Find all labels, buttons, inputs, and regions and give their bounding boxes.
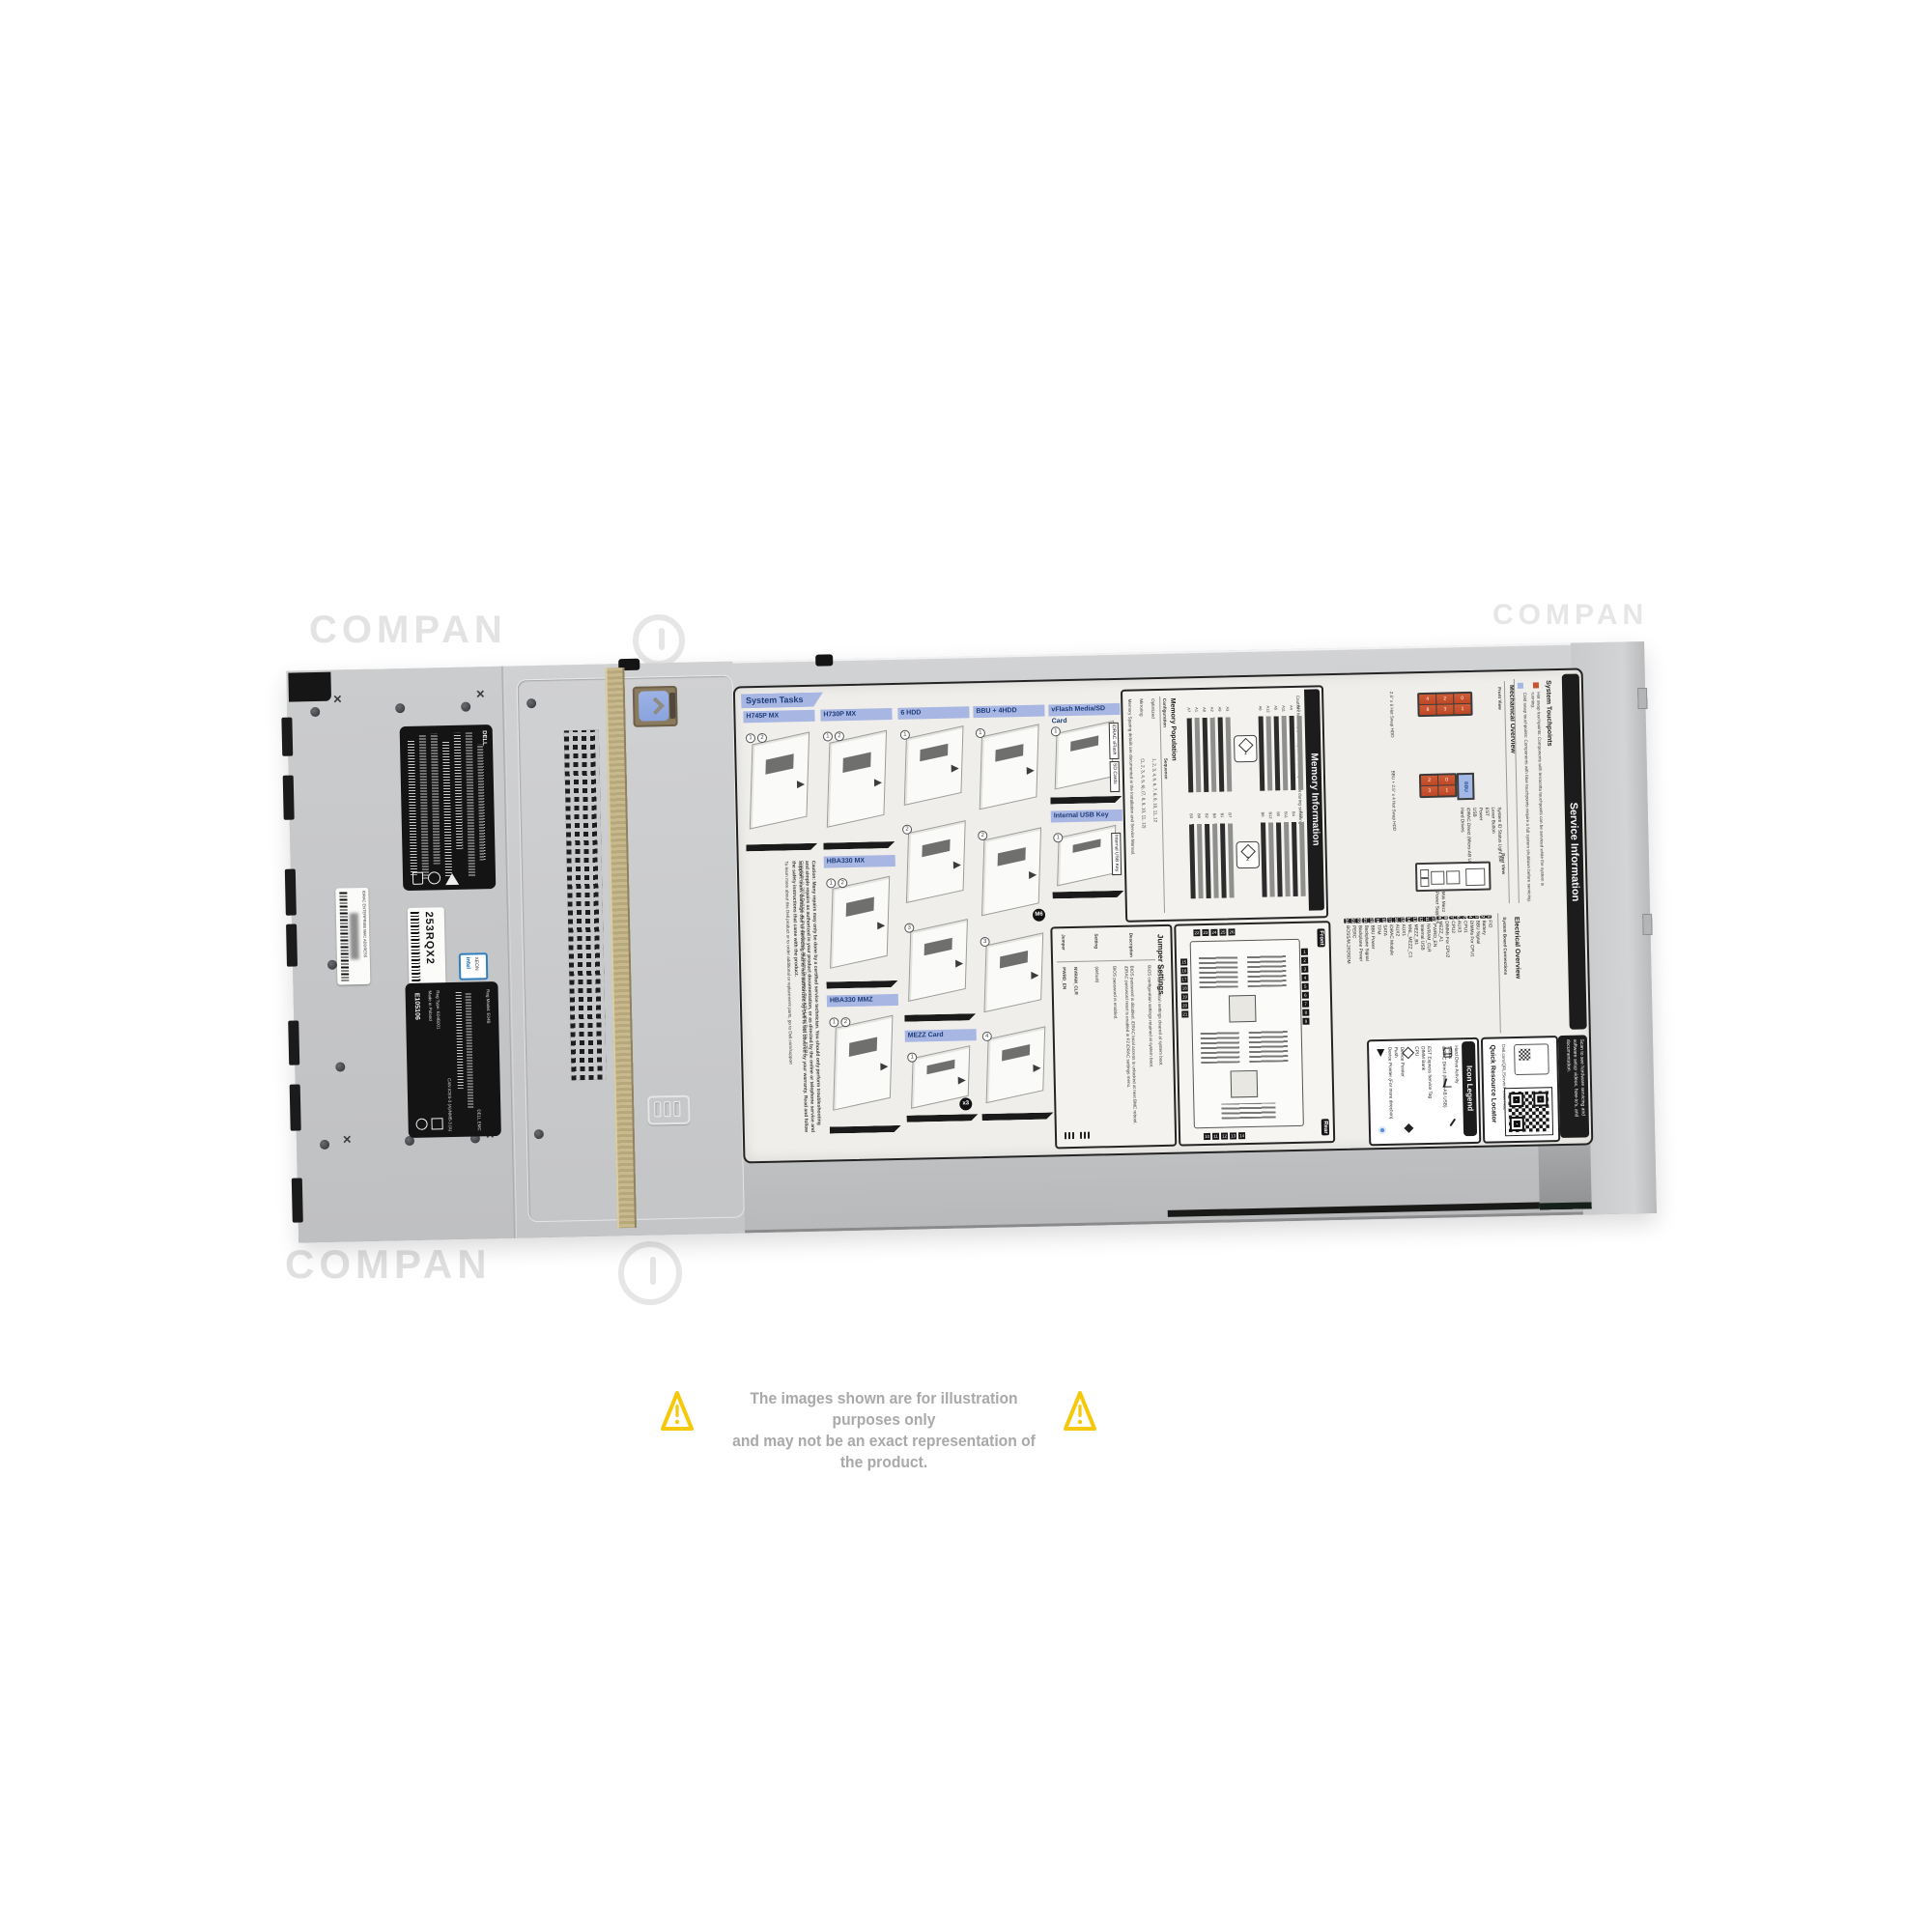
list-item: 22	[1193, 929, 1200, 936]
list-item: Power	[1476, 808, 1484, 860]
tile-illustration: 12	[821, 722, 894, 841]
cert-square-icon	[431, 1118, 442, 1129]
cert-circle-icon	[428, 871, 440, 884]
ul-number: E105106	[413, 993, 421, 1020]
list-item: Power Supplies	[1433, 892, 1439, 930]
service-information-title: Service Information	[1562, 673, 1587, 1029]
list-item: A11	[1281, 705, 1288, 790]
watermark-logo	[633, 614, 685, 667]
tile-shadow-bar	[982, 1112, 1054, 1121]
disclaimer-text: The images shown are for illustration pu…	[720, 1388, 1048, 1473]
reg-model-text: Reg Model: E04B	[485, 989, 492, 1023]
cpu1-symbol: 1	[1234, 735, 1258, 763]
cold-swap-icon	[1518, 683, 1523, 689]
drive-latch-tab	[285, 869, 297, 916]
screw-size-badge: M6	[1033, 909, 1045, 922]
list-item: 3	[1421, 786, 1437, 796]
tile-shadow-bar	[830, 1125, 901, 1134]
callout-box: Internal USB Key	[1111, 833, 1122, 875]
list-item: A8	[1202, 707, 1208, 792]
tile-header: BBU + 4HDD	[973, 705, 1044, 719]
icon-legend-title: Icon Legend	[1462, 1041, 1477, 1136]
drive-latch-tab	[292, 1178, 303, 1222]
dell-emc-text: DELL EMC	[475, 1109, 481, 1130]
rear-connector-block	[1538, 1141, 1592, 1209]
regulatory-label: DELL	[400, 724, 497, 891]
list-item: Lever Button	[1489, 807, 1496, 859]
drive-latch-tab	[288, 1020, 299, 1065]
tile-shadow-bar	[823, 841, 895, 850]
list-item: A2	[1209, 707, 1216, 792]
memory-population-title: Memory Population	[1169, 698, 1177, 761]
list-item: 4	[1419, 695, 1435, 704]
tile-shadow-bar	[826, 980, 897, 989]
list-item: 15	[1180, 958, 1187, 965]
board-front-tag: Front	[1317, 928, 1324, 947]
list-item: B10	[1299, 811, 1306, 896]
list-item: 1	[1438, 785, 1455, 795]
cpu-socket	[1229, 995, 1257, 1023]
list-item: iDRAC Direct (Micro-AB USB)	[1463, 808, 1471, 860]
grip-slots	[647, 1095, 691, 1125]
rivet-clip: ×	[343, 1131, 352, 1148]
list-item: 17	[1180, 976, 1187, 982]
list-item: 14	[1238, 1132, 1245, 1139]
sequence-col-header: Sequence	[1163, 758, 1169, 780]
list-item: 19	[1181, 993, 1188, 1000]
tile-header: 6 HDD	[897, 706, 969, 720]
tile-header: H745P MX	[743, 710, 814, 724]
weee-bin-icon	[412, 872, 423, 885]
list-item: 20	[1181, 1002, 1188, 1009]
rivet-clip: ×	[333, 691, 342, 707]
product-photo-page: COMPAN COMPAN COMPAN COMPAN COMPAN COMPA…	[0, 0, 1932, 1932]
list-item: 16	[1180, 967, 1187, 974]
drive-latch-tab	[290, 1084, 301, 1130]
list-item: 2	[1301, 957, 1308, 964]
list-item: 7	[1302, 1001, 1309, 1008]
front2-caption: BBU + 2.5" x 4 Hot Swap HDD	[1390, 771, 1398, 854]
warning-triangle-icon	[445, 873, 459, 885]
list-item: 12	[1221, 1133, 1228, 1140]
tile-illustration: 2 M6	[976, 821, 1047, 927]
description-col-header: Description	[1127, 933, 1133, 957]
drive-latch-tab	[281, 718, 293, 756]
list-item: 8	[1419, 705, 1435, 715]
tile-header: MEZZ Card	[905, 1029, 977, 1042]
xeon-text: XEON	[473, 956, 479, 970]
jumper-default-note: (default)	[1094, 966, 1099, 982]
disclaimer-line2: and may not be an exact representation o…	[720, 1431, 1048, 1473]
board-callout-numbers-top: 2223242526	[1193, 928, 1235, 936]
mirroring-sequence: (1, 2, 3, 4, 5, 6), (7, 8, 9, 10, 11, 12…	[1140, 758, 1149, 913]
tile-header: vFlash Media/SD Card	[1048, 703, 1120, 717]
list-item: 1	[1454, 704, 1470, 714]
tile-shadow-bar	[907, 1114, 979, 1122]
list-item: 1	[1301, 949, 1308, 955]
list-item: B8	[1212, 813, 1219, 898]
list-item: 5	[1302, 983, 1309, 990]
hard-drive-activity-icon	[1443, 1047, 1452, 1057]
list-item: 8	[1302, 1009, 1309, 1016]
jumper-settings-box: Jumper Settings Jumper Setting Descripti…	[1050, 924, 1177, 1150]
rivet-clip: ×	[476, 686, 485, 702]
reg-type-text: Reg Type: E04B001	[435, 990, 441, 1029]
sparing-note: Memory Sparing details are documented in…	[1126, 699, 1137, 914]
tile-illustration: 2	[900, 814, 972, 913]
list-item: 26	[1228, 928, 1235, 935]
list-item: 13	[1230, 1132, 1236, 1139]
tile-header: H730P MX	[820, 708, 892, 722]
jumper-pins-icon	[1080, 1132, 1090, 1139]
screw-count-badge: x3	[959, 1097, 972, 1110]
list-item: 10	[1204, 1133, 1210, 1140]
chassis-side-tab	[1637, 688, 1647, 709]
icon-legend-col1: Hard Drive ActivityStatusiDRAC Direct (M…	[1433, 1045, 1460, 1137]
watermark-text: COMPAN	[1492, 599, 1648, 632]
list-item: A7	[1186, 707, 1193, 792]
list-item: 3	[1436, 704, 1453, 714]
jumper-name: PWRD_EN	[1061, 967, 1066, 989]
scan-note-bar: Scan to see hardware servicing and softw…	[1558, 1035, 1589, 1138]
front-drive-diagram-2: 2301	[1419, 773, 1458, 798]
icon-legend-box: Icon Legend Hard Drive ActivityStatusiDR…	[1367, 1037, 1481, 1147]
system-board-connections-title: System Board Connections	[1501, 917, 1509, 1033]
list-item: Mini Mezz	[1438, 892, 1445, 930]
watermark-text: COMPAN	[309, 609, 507, 652]
watermark-logo	[618, 1241, 682, 1305]
list-item: 0	[1454, 694, 1470, 703]
list-item: 6	[1302, 992, 1309, 999]
jumper-name: NVRAM_CLR	[1072, 967, 1078, 995]
tile-header: Internal USB Key	[1051, 810, 1122, 823]
intel-logo-text: intel	[465, 957, 470, 969]
list-item: A10	[1296, 705, 1303, 790]
chassis-corner-cap	[288, 672, 331, 702]
board-callout-numbers-left: 15161718192021	[1180, 958, 1188, 1017]
front-view-callouts: System ID Status Light BarLever ButtonES…	[1414, 807, 1502, 861]
chassis-top-nub	[815, 654, 833, 666]
phone-illustration	[1514, 1043, 1549, 1075]
list-item: 2	[1421, 776, 1437, 785]
system-board-connections-list: 1 FIO2 Battery3 BBU Signal4 DIMMs For CP…	[1333, 916, 1494, 1037]
list-item: B7	[1228, 812, 1235, 897]
drive-latch-tab	[283, 776, 295, 820]
made-in-text: Made in Poland	[427, 990, 434, 1020]
front-drive-diagram-1: 482301	[1417, 692, 1473, 717]
dimm-bank-a-right: A6A12A5A11A4A10	[1258, 705, 1303, 791]
list-item: B4	[1292, 811, 1298, 896]
dimm-bank-a-left: A7A1A8A2A9A3	[1186, 706, 1232, 792]
callout-box: SD Cards	[1110, 761, 1121, 792]
list-item: 11	[1212, 1133, 1219, 1140]
list-item: 21	[1181, 1010, 1188, 1017]
list-item: A12	[1265, 705, 1272, 790]
board-rear-tag: Rear	[1321, 1119, 1329, 1136]
chevron-right-icon	[647, 697, 665, 715]
list-item: B5	[1276, 811, 1283, 896]
list-item: A1	[1194, 707, 1201, 792]
list-item: 25	[1219, 929, 1226, 936]
intel-xeon-badge: intel XEON	[459, 952, 489, 980]
service-label: System Tasks H745P MX 12 Caution: Many r…	[733, 668, 1594, 1163]
warning-triangle-icon	[1064, 1390, 1096, 1433]
list-item: B2	[1205, 813, 1211, 898]
tile-illustration: 1	[898, 720, 970, 814]
disclaimer-banner: The images shown are for illustration pu…	[0, 1388, 1932, 1446]
list-item: B11	[1284, 811, 1291, 896]
tile-illustration: 3	[978, 927, 1049, 1022]
rear-view-callouts: Mini MezzPower Supplies	[1416, 892, 1446, 931]
qrl-title: Quick Resource Locator	[1489, 1044, 1497, 1135]
list-item: A9	[1217, 707, 1224, 792]
setting-col-header: Setting	[1093, 933, 1098, 949]
list-item: System ID Status Light Bar	[1494, 807, 1502, 859]
optimized-row: Optimized	[1150, 698, 1155, 719]
server-top-view: × × × × DELL IDRAC ENTERPRISE MAC ADDRES…	[286, 641, 1657, 1243]
config-col-header: Configuration	[1161, 698, 1167, 727]
list-item: 24	[1210, 929, 1217, 936]
qrl-box: Quick Resource Locator Dell.com/QRL/Serv…	[1481, 1036, 1560, 1144]
tile-header: HBA330 MMZ	[827, 994, 898, 1008]
device-pointer-icon	[1377, 1049, 1384, 1057]
jumper-desc-alt: BIOS password is disabled. iDRAC local a…	[1119, 966, 1138, 1138]
service-tag-text: 253RQX2	[423, 911, 436, 965]
watermark-text: COMPAN	[285, 1241, 492, 1288]
tile-illustration: 1 iDRAC vFlash SD Cards	[1049, 717, 1121, 796]
hot-swap-text: Hot swap touchpoints: Components with te…	[1529, 692, 1546, 902]
memory-information-title: Memory Information	[1304, 689, 1324, 910]
list-item: A3	[1225, 706, 1232, 791]
front-view-label: Front View	[1496, 687, 1502, 710]
cpu-socket	[1231, 1070, 1259, 1098]
callout-box: iDRAC vFlash	[1109, 723, 1120, 759]
list-item: B3	[1189, 813, 1196, 898]
jumper-col-header: Jumper	[1060, 934, 1065, 951]
tile-illustration: 12	[824, 868, 895, 980]
scan-note-text: Scan to see hardware servicing and softw…	[1564, 1038, 1586, 1133]
list-item: B12	[1268, 811, 1275, 896]
list-item: B6	[1261, 812, 1267, 897]
tile-illustration: 3	[902, 913, 974, 1011]
system-board-panel: 2223242526 123456789 1011121314 15161718…	[1174, 921, 1335, 1146]
dimm-bank-b-right: B6B12B5B11B4B10	[1261, 811, 1306, 897]
mac-sticker-text: IDRAC ENTERPRISE MAC ADDRESS	[360, 891, 368, 957]
tile-shadow-bar	[1050, 796, 1122, 805]
front1-caption: 2.5" x 6 Hot Swap HDD	[1388, 692, 1395, 759]
reg-model-label: E105106 Made in Poland Reg Type: E04B001…	[405, 981, 500, 1138]
warning-triangle-icon	[661, 1390, 694, 1433]
list-item: A5	[1273, 705, 1280, 790]
list-item: A4	[1289, 705, 1295, 790]
dimm-bank-b-left: B3B9B2B8B1B7	[1189, 812, 1235, 898]
tile-illustration: 1 x3	[905, 1042, 977, 1114]
service-tag-sticker: 253RQX2	[408, 907, 446, 987]
list-item: 9	[1302, 1018, 1309, 1025]
tile-header: HBA330 MX	[824, 855, 895, 868]
memory-information-box: Memory Information Caution: Memory (DIMM…	[1121, 685, 1328, 923]
tile-illustration: 1	[974, 719, 1045, 821]
optimized-sequence: 1, 2, 3, 4, 5, 6, 7, 8, 9, 10, 11, 12	[1151, 758, 1160, 913]
mac-address-sticker: IDRAC ENTERPRISE MAC ADDRESS	[335, 888, 370, 985]
tile-illustration: 4	[980, 1022, 1051, 1113]
list-item: 3	[1301, 966, 1308, 973]
system-tasks-tab: System Tasks	[741, 693, 823, 709]
list-item: 4	[1301, 975, 1308, 981]
icon-legend-col3: Device PointerPushDevice Pointer (For mo…	[1378, 1047, 1406, 1139]
ices-text: CAN ICES-3 (A)/NMB-3 (A)	[446, 1078, 453, 1131]
list-item: 18	[1181, 984, 1188, 991]
list-item: 0	[1438, 775, 1455, 784]
list-item: B9	[1197, 813, 1204, 898]
list-item: A6	[1258, 706, 1264, 791]
release-button-recess	[633, 686, 678, 727]
disclaimer-line1: The images shown are for illustration pu…	[720, 1388, 1048, 1431]
ce-mark-icon	[415, 1119, 427, 1130]
release-button	[639, 691, 669, 722]
qr-code	[1505, 1088, 1552, 1135]
jumper-pins-icon	[1065, 1132, 1074, 1139]
chassis-bottom-edge	[1168, 1201, 1587, 1216]
electrical-overview-title: Electrical Overview	[1513, 917, 1520, 979]
mirroring-row: Mirroring	[1138, 698, 1144, 716]
tile-shadow-bar	[1053, 891, 1124, 899]
list-item: B1	[1220, 813, 1227, 898]
tile-illustration: 12	[827, 1008, 899, 1123]
chassis-side-tab	[1642, 914, 1652, 935]
hot-swap-icon	[1533, 682, 1539, 688]
drive-latch-tab	[286, 924, 298, 967]
board-callout-numbers-right: 123456789	[1301, 949, 1310, 1025]
bbu-block: BBU	[1457, 773, 1475, 800]
system-touchpoints-title: System Touchpoints	[1545, 680, 1552, 746]
list-item: 2	[1436, 694, 1453, 703]
tile-shadow-bar	[746, 843, 817, 852]
cpu2-symbol: 2	[1236, 841, 1260, 869]
tile-shadow-bar	[904, 1013, 976, 1022]
tile-illustration: 1 Internal USB Key	[1051, 823, 1122, 891]
tile-illustration: 12	[744, 724, 816, 843]
rear-view-diagram	[1415, 862, 1492, 893]
release-latch	[669, 693, 676, 719]
list-item: 23	[1202, 929, 1208, 936]
board-callout-numbers-bottom: 1011121314	[1204, 1132, 1245, 1140]
rear-view-label: Rear View	[1500, 853, 1506, 874]
